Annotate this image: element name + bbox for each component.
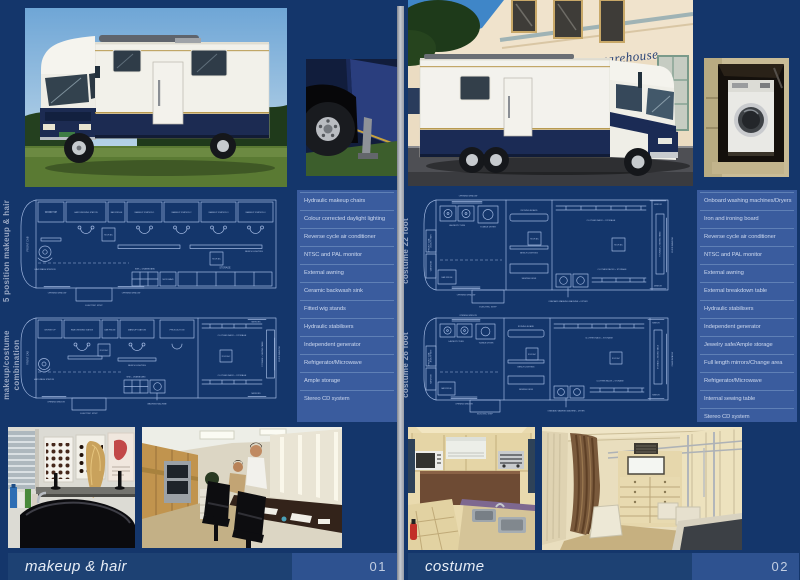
svg-text:TUMBLE DRYER: TUMBLE DRYER xyxy=(480,227,496,229)
svg-text:LAUNDRY TUBS: LAUNDRY TUBS xyxy=(449,224,466,227)
svg-text:MICROWAVE: MICROWAVE xyxy=(162,278,174,281)
svg-text:HAIR DRESSING STATION: HAIR DRESSING STATION xyxy=(74,211,98,214)
svg-text:MIRROR: MIRROR xyxy=(652,323,660,325)
svg-text:ROOF A/C: ROOF A/C xyxy=(612,357,621,360)
feature-item: Stereo CD system xyxy=(300,390,394,408)
svg-text:FIXED WINDOW: FIXED WINDOW xyxy=(672,352,674,367)
feature-item: Stereo CD system xyxy=(700,408,794,426)
svg-text:ELECTRIC STEP: ELECTRIC STEP xyxy=(479,307,497,309)
svg-text:STORAGE + SEWING TABLE: STORAGE + SEWING TABLE xyxy=(657,344,660,369)
svg-text:BENCH LIGHTING: BENCH LIGHTING xyxy=(245,251,263,253)
feature-item: NTSC and PAL monitor xyxy=(700,246,794,264)
photo-makeup-truck-exterior xyxy=(25,8,287,187)
svg-text:HAIR WASH STATION: HAIR WASH STATION xyxy=(34,378,55,381)
svg-text:FRONT CAB: FRONT CAB xyxy=(27,351,30,365)
svg-text:ROOF A/C: ROOF A/C xyxy=(614,243,623,246)
svg-text:FIXED WINDOW: FIXED WINDOW xyxy=(279,346,281,361)
blueprint-costume-26: FRONT CAB OPENING WINDOW LAUNDRY TUBS TU… xyxy=(416,310,692,416)
svg-text:PRODUCTION: PRODUCTION xyxy=(170,330,185,332)
svg-text:MIRROR: MIRROR xyxy=(654,286,662,288)
feature-item: Refrigerator/Microwave xyxy=(300,354,394,372)
svg-text:SEWING DESK: SEWING DESK xyxy=(519,389,534,391)
section-label-costume-22: costume 22 foot xyxy=(401,190,411,312)
svg-text:BAR FRIDGE: BAR FRIDGE xyxy=(105,329,117,332)
svg-text:HAIR DRESSING STATION: HAIR DRESSING STATION xyxy=(71,329,94,332)
svg-text:STORAGE + SEWING TABLE: STORAGE + SEWING TABLE xyxy=(261,341,264,367)
svg-text:BAR FRIDGE: BAR FRIDGE xyxy=(441,387,452,390)
svg-text:SINK + DRAINBOARD: SINK + DRAINBOARD xyxy=(135,268,156,271)
svg-text:CLOTHES RACKS + STORAGE: CLOTHES RACKS + STORAGE xyxy=(596,380,624,383)
feature-item: Jewelry safe/Ample storage xyxy=(700,336,794,354)
svg-text:ROOF A/C: ROOF A/C xyxy=(528,353,537,356)
svg-text:ONBOARD WASHING MACHINE + DRYE: ONBOARD WASHING MACHINE + DRYER xyxy=(548,300,588,303)
section-title-bar-costume: costume xyxy=(408,553,692,580)
photo-wheel-detail xyxy=(306,59,397,176)
svg-text:BAR FRIDGE: BAR FRIDGE xyxy=(111,211,123,214)
svg-text:OPENING WINDOW: OPENING WINDOW xyxy=(459,196,478,198)
washing-machine xyxy=(728,80,774,156)
svg-text:ROOF A/C: ROOF A/C xyxy=(530,237,539,240)
svg-text:STORAGE: STORAGE xyxy=(219,267,231,270)
svg-text:BENCH LIGHTING: BENCH LIGHTING xyxy=(128,365,146,367)
svg-text:ONBOARD WASHING MACHINE + DRYE: ONBOARD WASHING MACHINE + DRYER xyxy=(547,410,585,413)
svg-text:ROOF A/C: ROOF A/C xyxy=(222,355,231,358)
page-number-01: 01 xyxy=(292,553,397,580)
feature-item: Ample storage xyxy=(300,372,394,390)
svg-text:ELECTRIC STEP: ELECTRIC STEP xyxy=(85,305,103,307)
svg-text:CLOTHES RACKS + STORAGE: CLOTHES RACKS + STORAGE xyxy=(598,268,628,271)
feature-panel-costume: Onboard washing machines/Dryers Iron and… xyxy=(697,190,797,422)
feature-item: Ceramic backwash sink xyxy=(300,282,394,300)
photo-costume-corridor-interior xyxy=(542,427,742,550)
svg-text:BAR FRIDGE: BAR FRIDGE xyxy=(442,276,454,279)
svg-text:ROOF A/C: ROOF A/C xyxy=(100,349,109,352)
photo-costume-truck-exterior: costume warehouse xyxy=(408,0,693,186)
svg-text:ROOF A/C: ROOF A/C xyxy=(212,257,221,260)
feature-item: Independent generator xyxy=(300,336,394,354)
feature-item: Colour corrected daylight lighting xyxy=(300,210,394,228)
fire-extinguisher xyxy=(410,523,417,540)
svg-text:MIRRORS: MIRRORS xyxy=(252,393,262,395)
feature-item: Refrigerator/Microwave xyxy=(700,372,794,390)
photo-washing-machine-detail xyxy=(704,58,789,177)
feature-item: Fitted wig stands xyxy=(300,300,394,318)
svg-text:WORKTOP: WORKTOP xyxy=(44,330,56,332)
svg-text:TUMBLE DRYER: TUMBLE DRYER xyxy=(479,343,494,345)
section-label-combination: makeup/costume combination xyxy=(2,313,12,417)
feature-item: External breakdown table xyxy=(700,282,794,300)
svg-text:FRONT CAB: FRONT CAB xyxy=(26,236,30,251)
svg-text:MIRRORS: MIRRORS xyxy=(252,322,262,324)
svg-text:MIRROR: MIRROR xyxy=(654,204,662,206)
svg-text:IRONING BOARD: IRONING BOARD xyxy=(518,325,535,328)
svg-text:BENCH LIGHTING: BENCH LIGHTING xyxy=(520,253,538,255)
feature-item: Hydraulic stabilisers xyxy=(700,300,794,318)
svg-text:ELECTRIC STEP: ELECTRIC STEP xyxy=(80,413,98,415)
svg-text:CLOTHES RACK + STORAGE: CLOTHES RACK + STORAGE xyxy=(218,374,247,377)
svg-text:ROOF A/C: ROOF A/C xyxy=(104,233,113,236)
feature-item: Iron and ironing board xyxy=(700,210,794,228)
svg-text:WASHING MACHINE: WASHING MACHINE xyxy=(147,403,167,406)
svg-text:WORKTOP: WORKTOP xyxy=(45,211,58,214)
svg-text:MAKEUP STATION 1: MAKEUP STATION 1 xyxy=(135,211,156,214)
feature-item: NTSC and PAL monitor xyxy=(300,246,394,264)
section-label-5position: 5 position makeup & hair xyxy=(2,190,12,312)
photo-makeup-interior xyxy=(142,427,342,548)
svg-text:SINK + DRAINBOARD: SINK + DRAINBOARD xyxy=(126,376,146,379)
svg-text:CLOTHES RACK + STORAGE: CLOTHES RACK + STORAGE xyxy=(585,337,613,340)
svg-text:LAUNDRY TUBS: LAUNDRY TUBS xyxy=(448,340,464,343)
svg-text:OPENING WINDOW: OPENING WINDOW xyxy=(459,315,477,317)
blueprint-5position-makeup: FRONT CAB WORKTOP HAIR DRESSING STATION … xyxy=(14,190,294,310)
svg-text:IRONING BOARD: IRONING BOARD xyxy=(521,209,538,212)
svg-text:CLOTHES RACK + STORAGE: CLOTHES RACK + STORAGE xyxy=(218,334,247,337)
blueprint-costume-22: FRONT CAB OPENING WINDOW LAUNDRY TUBS TU… xyxy=(416,190,692,310)
blueprint-makeup-costume-combo: FRONT CAB WORKTOP HAIR DRESSING STATION … xyxy=(14,310,294,416)
feature-item: Independent generator xyxy=(700,318,794,336)
feature-item: Hydraulic stabilisers xyxy=(300,318,394,336)
truck-illustration xyxy=(420,54,678,176)
svg-text:CLOTHES RACK + STORAGE: CLOTHES RACK + STORAGE xyxy=(587,219,616,222)
svg-text:STORAGE + SEWING TABLE: STORAGE + SEWING TABLE xyxy=(659,231,662,257)
svg-text:HAIR WASH STATION: HAIR WASH STATION xyxy=(35,268,56,271)
section-title-bar-makeup: makeup & hair xyxy=(8,553,292,580)
feature-item: Internal sewing table xyxy=(700,390,794,408)
svg-text:ELECTRIC STEP: ELECTRIC STEP xyxy=(477,414,493,416)
photo-hair-wash-station xyxy=(8,427,135,548)
section-label-costume-26: costume 26 foot xyxy=(401,313,411,417)
svg-text:OPENING WINDOW: OPENING WINDOW xyxy=(457,295,476,297)
svg-text:JEWELRY SAFE: JEWELRY SAFE xyxy=(430,233,433,247)
stereo xyxy=(498,451,524,469)
svg-text:BENCH LIGHTING: BENCH LIGHTING xyxy=(517,367,534,369)
feature-item: Reverse cycle air conditioner xyxy=(700,228,794,246)
photo-costume-galley-interior xyxy=(408,427,535,550)
feature-item: Onboard washing machines/Dryers xyxy=(700,192,794,210)
svg-text:MAKEUP STATION 3: MAKEUP STATION 3 xyxy=(209,211,230,214)
svg-text:MAKEUP STATION: MAKEUP STATION xyxy=(128,329,147,332)
svg-text:OPENING WINDOW: OPENING WINDOW xyxy=(122,293,141,295)
svg-text:MAKEUP STATION 4: MAKEUP STATION 4 xyxy=(246,211,267,214)
svg-text:MIRROR: MIRROR xyxy=(652,395,660,397)
svg-text:FIXED WINDOW: FIXED WINDOW xyxy=(672,237,674,252)
svg-text:WARDROBE: WARDROBE xyxy=(430,260,433,271)
section-title-costume: costume xyxy=(408,553,692,580)
svg-text:SEWING DESK: SEWING DESK xyxy=(522,278,537,280)
svg-text:WARDROBE: WARDROBE xyxy=(430,373,433,384)
svg-text:OPENING WINDOW: OPENING WINDOW xyxy=(47,402,65,404)
svg-text:JEWELRY SAFE: JEWELRY SAFE xyxy=(430,349,433,363)
feature-item: Reverse cycle air conditioner xyxy=(300,228,394,246)
feature-item: External awning xyxy=(700,264,794,282)
section-title-makeup: makeup & hair xyxy=(8,553,292,580)
brochure-spread: 5 position makeup & hair makeup/costume … xyxy=(0,0,800,580)
svg-text:MAKEUP STATION 2: MAKEUP STATION 2 xyxy=(172,211,193,214)
svg-text:OPENING WINDOW: OPENING WINDOW xyxy=(48,293,67,295)
feature-item: Hydraulic makeup chairs xyxy=(300,192,394,210)
feature-panel-makeup: Hydraulic makeup chairs Colour corrected… xyxy=(297,190,397,422)
feature-item: Full length mirrors/Change area xyxy=(700,354,794,372)
feature-item: External awning xyxy=(300,264,394,282)
page-number-02: 02 xyxy=(692,553,799,580)
